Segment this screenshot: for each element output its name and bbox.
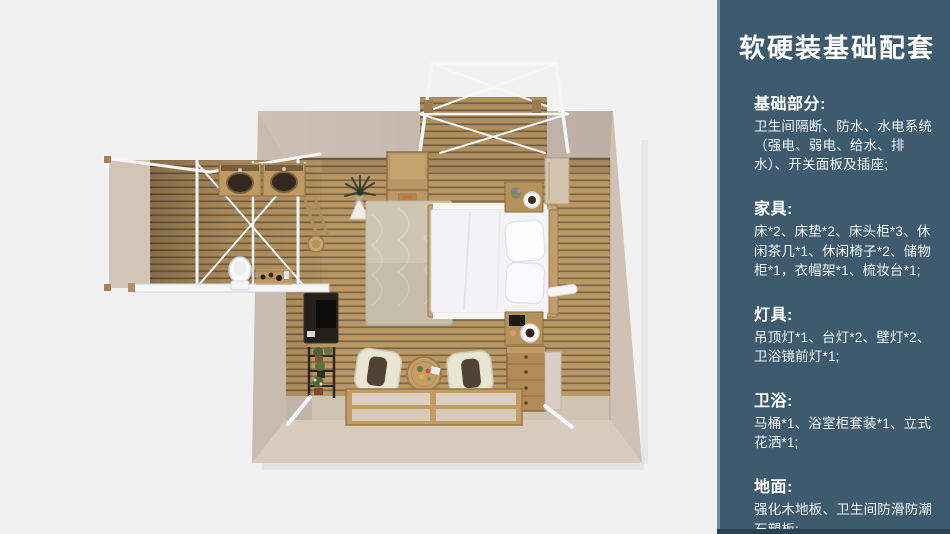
wall-bottom: [252, 420, 642, 463]
nightstand-top: [505, 182, 543, 212]
armchair-left: [353, 347, 402, 395]
frame-knob: [128, 283, 135, 292]
corner-wardrobe: [545, 158, 569, 204]
pillow: [505, 262, 545, 304]
info-panel: 软硬装基础配套 基础部分: 卫生间隔断、防水、水电系统（强电、弱电、给水、排水）…: [717, 0, 950, 534]
panel-bottom-strip: [717, 529, 950, 534]
section-basics: 基础部分: 卫生间隔断、防水、水电系统（强电、弱电、给水、排水）、开关面板及插座…: [754, 90, 936, 174]
coffee-table: [407, 357, 441, 391]
frame-knob: [104, 284, 111, 291]
potted-plant: [313, 377, 324, 388]
section-body: 卫生间隔断、防水、水电系统（强电、弱电、给水、排水）、开关面板及插座;: [754, 117, 936, 174]
faucet: [282, 167, 286, 171]
nightstand-bottom: [505, 312, 543, 345]
sink-basin: [271, 172, 297, 192]
faucet: [238, 168, 242, 172]
floorplan-render: [0, 0, 717, 534]
deck-post: [532, 100, 541, 113]
section-lighting: 灯具: 吊顶灯*1、台灯*2、壁灯*2、卫浴镜前灯*1;: [754, 301, 936, 366]
section-heading: 地面:: [754, 473, 936, 497]
toiletry-shelf: [256, 269, 292, 285]
section-heading: 基础部分:: [754, 90, 936, 114]
slide: 软硬装基础配套 基础部分: 卫生间隔断、防水、水电系统（强电、弱电、给水、排水）…: [0, 0, 950, 534]
desk: [304, 293, 338, 343]
section-flooring: 地面: 强化木地板、卫生间防滑防潮石塑板;: [754, 473, 936, 534]
wing-side-deck: [108, 160, 150, 288]
storage-cabinet: [387, 152, 428, 205]
double-bed: [428, 203, 558, 319]
potted-plant: [313, 347, 323, 357]
deck-post: [424, 100, 433, 113]
panel-sections: 基础部分: 卫生间隔断、防水、水电系统（强电、弱电、给水、排水）、开关面板及插座…: [754, 90, 936, 534]
potted-plant: [315, 361, 325, 371]
cabinet-handle: [402, 196, 412, 199]
side-panel: [545, 352, 561, 410]
bathroom-wing: [104, 154, 329, 292]
tray: [509, 315, 525, 326]
section-body: 床*2、床垫*2、床头柜*3、休闲茶几*1、休闲椅子*2、储物柜*1，衣帽架*1…: [754, 222, 936, 279]
section-body: 吊顶灯*1、台灯*2、壁灯*2、卫浴镜前灯*1;: [754, 328, 936, 366]
monitor: [316, 300, 336, 328]
panel-title: 软硬装基础配套: [739, 34, 936, 64]
panel-edge-highlight: [717, 0, 720, 534]
section-sanitary: 卫浴: 马桶*1、浴室柜套装*1、立式花洒*1;: [754, 387, 936, 452]
frame-knob: [104, 156, 111, 163]
pillow: [505, 220, 546, 263]
headboard: [549, 210, 558, 314]
sink-basin: [227, 173, 253, 193]
floor-mats: [346, 389, 522, 425]
section-furniture: 家具: 床*2、床垫*2、床头柜*3、休闲茶几*1、休闲椅子*2、储物柜*1，衣…: [754, 195, 936, 279]
section-body: 马桶*1、浴室柜套装*1、立式花洒*1;: [754, 414, 936, 452]
section-heading: 灯具:: [754, 301, 936, 325]
section-heading: 卫浴:: [754, 387, 936, 411]
section-heading: 家具:: [754, 195, 936, 219]
